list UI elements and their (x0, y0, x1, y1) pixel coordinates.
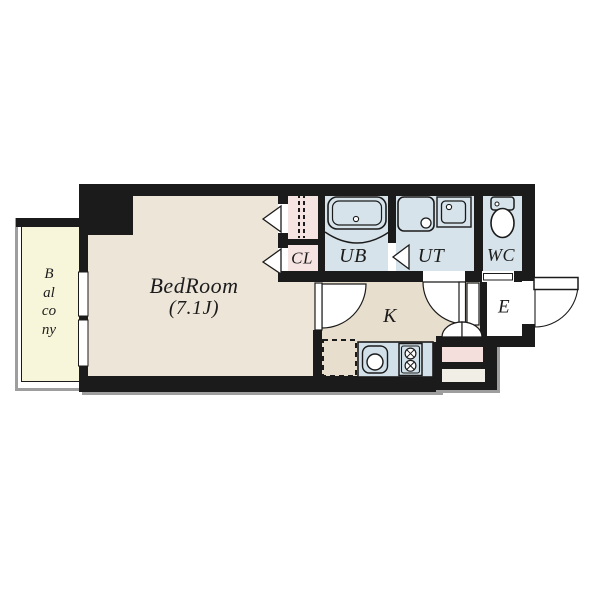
toilet-label: WC (487, 246, 515, 264)
closet-door-arrow-lower (263, 249, 281, 274)
closet-dashed-lines (299, 194, 304, 238)
washbasin-icon (437, 197, 471, 227)
sink-icon (363, 346, 388, 373)
closet-door-arrow-upper (263, 206, 281, 232)
door-swing-arc-utility (423, 282, 466, 324)
kitchen-counter (358, 342, 433, 377)
door-swing-arc-kitchen (315, 283, 366, 330)
utility-door-gap (423, 271, 465, 282)
closet-label: CL (291, 250, 313, 267)
window-symbol (79, 272, 89, 366)
toilet-door-leaf (484, 274, 513, 281)
stove-icon (399, 344, 422, 376)
floorplan-canvas: Balcony BedRoom (7.1J) CL UB UT WC K E (0, 0, 600, 600)
bath-label: UB (339, 246, 367, 266)
refrigerator-space (323, 340, 356, 376)
toilet-icon (491, 197, 514, 238)
entrance-door-leaf (534, 278, 578, 290)
kitchen-label: K (383, 306, 397, 326)
bathtub-icon (325, 197, 389, 243)
utility-label: UT (418, 246, 445, 266)
entrance-hall-door-leaf (467, 283, 479, 325)
bedroom-area-label: (7.1J) (169, 298, 219, 318)
entrance-label: E (498, 298, 510, 317)
washing-machine-icon (398, 197, 434, 231)
entrance-door-arc (534, 278, 578, 328)
balcony-label: Balcony (42, 265, 57, 339)
bedroom-label: BedRoom (149, 275, 238, 297)
